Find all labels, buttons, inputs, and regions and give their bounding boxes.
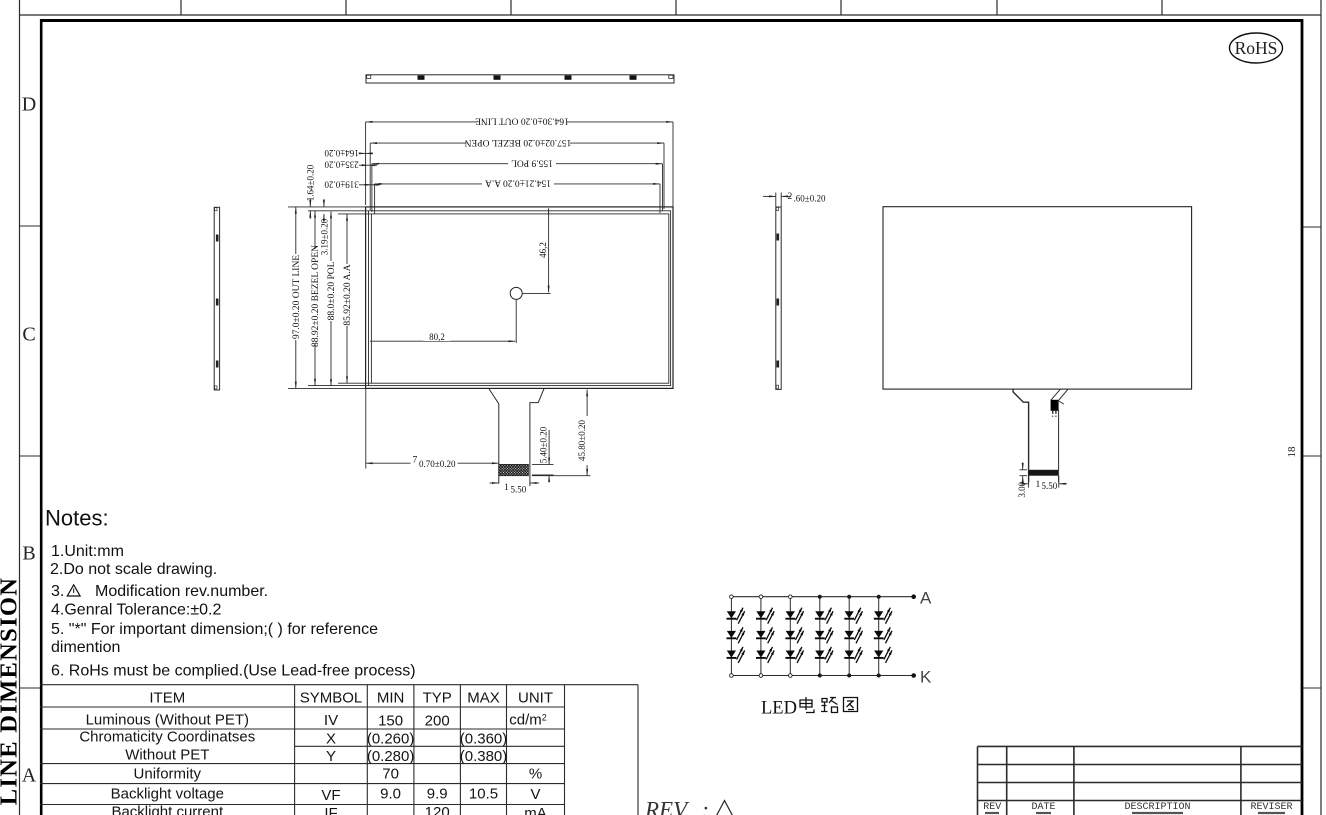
svg-text:dimention: dimention bbox=[51, 639, 120, 656]
svg-text:319±0.20: 319±0.20 bbox=[324, 179, 359, 189]
svg-text:A: A bbox=[920, 589, 932, 608]
svg-text:Modification rev.number.: Modification rev.number. bbox=[95, 583, 268, 600]
svg-text:200: 200 bbox=[425, 713, 450, 730]
svg-text:VF: VF bbox=[321, 787, 340, 804]
svg-text:C: C bbox=[22, 324, 35, 346]
svg-text:0.70±0.20: 0.70±0.20 bbox=[419, 459, 456, 469]
svg-text:Chromaticity Coordinatses: Chromaticity Coordinatses bbox=[79, 729, 255, 746]
svg-text:7: 7 bbox=[413, 455, 418, 465]
svg-text:Luminous (Without PET): Luminous (Without PET) bbox=[86, 712, 249, 729]
svg-text:88.92±0.20 BEZEL OPEN: 88.92±0.20 BEZEL OPEN bbox=[311, 245, 321, 347]
svg-text:(0.260): (0.260) bbox=[367, 731, 415, 748]
svg-text:LINE DIMENSION: LINE DIMENSION bbox=[0, 577, 22, 806]
svg-text:LED: LED bbox=[761, 699, 797, 719]
svg-text:85.92±0.20 A.A: 85.92±0.20 A.A bbox=[343, 264, 353, 325]
svg-text:Backlight current: Backlight current bbox=[111, 804, 224, 815]
svg-text:6. RoHs must be complied.(Use: 6. RoHs must be complied.(Use Lead-free … bbox=[51, 662, 416, 679]
svg-text:MIN: MIN bbox=[377, 690, 405, 707]
svg-text:1: 1 bbox=[504, 483, 509, 493]
svg-text:164±0.20: 164±0.20 bbox=[324, 148, 359, 158]
svg-text:X: X bbox=[326, 731, 336, 748]
svg-text:(0.280): (0.280) bbox=[367, 748, 415, 765]
svg-text:5.40±0.20: 5.40±0.20 bbox=[539, 426, 549, 463]
svg-text:164.30±0.20 OUT LINE: 164.30±0.20 OUT LINE bbox=[475, 116, 569, 126]
svg-text:MAX: MAX bbox=[467, 690, 500, 707]
svg-text:Y: Y bbox=[326, 748, 336, 765]
svg-text:154.21±0.20 A.A: 154.21±0.20 A.A bbox=[485, 178, 551, 188]
svg-text:REV: REV bbox=[983, 802, 1001, 813]
svg-text:B: B bbox=[22, 543, 35, 565]
svg-text:V: V bbox=[530, 786, 540, 803]
svg-text:10.5: 10.5 bbox=[469, 786, 498, 803]
svg-text:mA: mA bbox=[524, 805, 547, 815]
svg-text:K: K bbox=[920, 668, 932, 687]
svg-text:REVISER: REVISER bbox=[1250, 802, 1292, 813]
svg-text:IV: IV bbox=[324, 712, 338, 729]
svg-text:80,2: 80,2 bbox=[429, 332, 445, 342]
svg-text:9.0: 9.0 bbox=[380, 786, 401, 803]
svg-text:235±0.20: 235±0.20 bbox=[324, 160, 359, 170]
svg-text:3.19±0.20: 3.19±0.20 bbox=[320, 218, 330, 255]
svg-text:cd/m2: cd/m2 bbox=[509, 712, 547, 729]
svg-text:SYMBOL: SYMBOL bbox=[300, 690, 363, 707]
svg-text:RoHS: RoHS bbox=[1235, 38, 1278, 58]
svg-text:4.Genral Tolerance:±0.2: 4.Genral Tolerance:±0.2 bbox=[51, 602, 221, 619]
svg-text:3.: 3. bbox=[51, 583, 64, 600]
svg-text:Notes:: Notes: bbox=[45, 506, 109, 531]
svg-text:A: A bbox=[22, 765, 37, 787]
svg-text:155.9 POL: 155.9 POL bbox=[511, 157, 553, 167]
svg-text:18: 18 bbox=[1286, 446, 1298, 458]
svg-text:46,2: 46,2 bbox=[538, 242, 548, 258]
svg-text:2: 2 bbox=[788, 192, 793, 202]
svg-text:D: D bbox=[22, 94, 36, 116]
svg-text:UNIT: UNIT bbox=[518, 690, 553, 707]
svg-text:2.Do not scale drawing.: 2.Do not scale drawing. bbox=[50, 561, 217, 578]
svg-text:REV. :: REV. : bbox=[644, 798, 709, 815]
svg-text:150: 150 bbox=[378, 713, 403, 730]
svg-text:120: 120 bbox=[425, 804, 450, 815]
svg-text:157.02±0.20 BEZEL OPEN: 157.02±0.20 BEZEL OPEN bbox=[465, 137, 572, 147]
svg-text:1: 1 bbox=[1036, 480, 1041, 490]
svg-text:5. "*" For important dimension: 5. "*" For important dimension;( ) for r… bbox=[51, 621, 378, 638]
svg-text:45.80±0.20: 45.80±0.20 bbox=[577, 420, 587, 461]
svg-text:%: % bbox=[529, 766, 542, 783]
svg-text:ITEM: ITEM bbox=[149, 690, 185, 707]
svg-text:DATE: DATE bbox=[1031, 802, 1055, 813]
svg-text:.60±0.20: .60±0.20 bbox=[794, 194, 826, 204]
svg-text:70: 70 bbox=[382, 766, 399, 783]
svg-text:5.50: 5.50 bbox=[511, 484, 527, 494]
svg-text:5.50: 5.50 bbox=[1042, 481, 1058, 491]
svg-text:(0.360): (0.360) bbox=[460, 731, 508, 748]
svg-text:(0.380): (0.380) bbox=[460, 748, 508, 765]
svg-text:1.64±0.20: 1.64±0.20 bbox=[306, 164, 316, 201]
svg-text:88.0±0.20 POL: 88.0±0.20 POL bbox=[327, 261, 337, 320]
svg-text:DESCRIPTION: DESCRIPTION bbox=[1124, 802, 1190, 813]
svg-text:Without PET: Without PET bbox=[125, 747, 209, 764]
svg-text:1.Unit:mm: 1.Unit:mm bbox=[51, 543, 124, 560]
svg-text:Uniformity: Uniformity bbox=[134, 766, 202, 783]
svg-text:TYP: TYP bbox=[423, 690, 452, 707]
svg-text:IF: IF bbox=[324, 805, 337, 815]
svg-text:Backlight voltage: Backlight voltage bbox=[111, 786, 224, 803]
svg-text:9.9: 9.9 bbox=[427, 786, 448, 803]
svg-text:97.0±0.20 OUT LINE: 97.0±0.20 OUT LINE bbox=[292, 255, 302, 339]
